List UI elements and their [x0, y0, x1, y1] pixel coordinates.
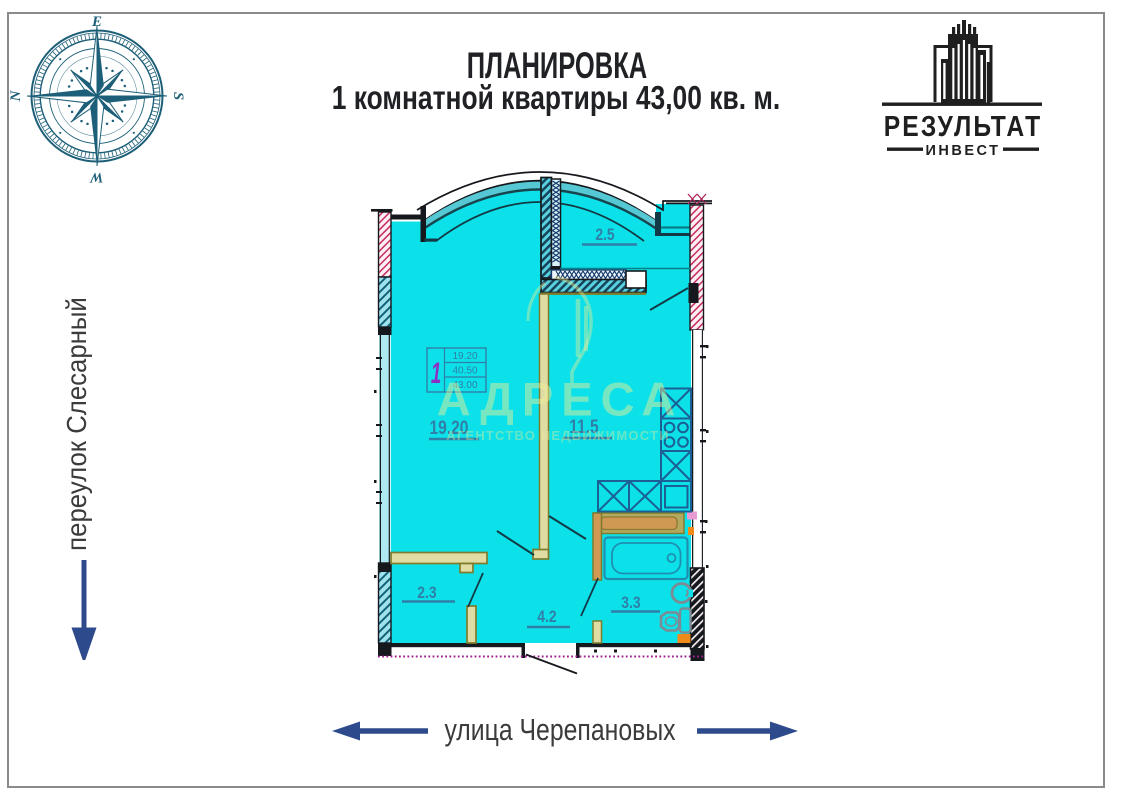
svg-text:ИНВЕСТ: ИНВЕСТ — [925, 143, 1000, 159]
svg-text:E: E — [91, 14, 102, 30]
svg-text:РЕЗУЛЬТАТ: РЕЗУЛЬТАТ — [884, 110, 1043, 142]
svg-text:W: W — [89, 169, 104, 184]
svg-text:N: N — [9, 89, 24, 102]
svg-text:S: S — [170, 92, 185, 100]
svg-text:19.20: 19.20 — [452, 351, 477, 362]
svg-text:2.5: 2.5 — [595, 226, 615, 245]
svg-text:АГЕНТСТВО НЕДВИЖИМОСТИ: АГЕНТСТВО НЕДВИЖИМОСТИ — [446, 428, 669, 443]
svg-text:2.3: 2.3 — [417, 584, 437, 603]
svg-text:3.3: 3.3 — [621, 594, 641, 613]
svg-text:4.2: 4.2 — [537, 608, 557, 627]
svg-text:АДРЕСА: АДРЕСА — [437, 373, 684, 426]
